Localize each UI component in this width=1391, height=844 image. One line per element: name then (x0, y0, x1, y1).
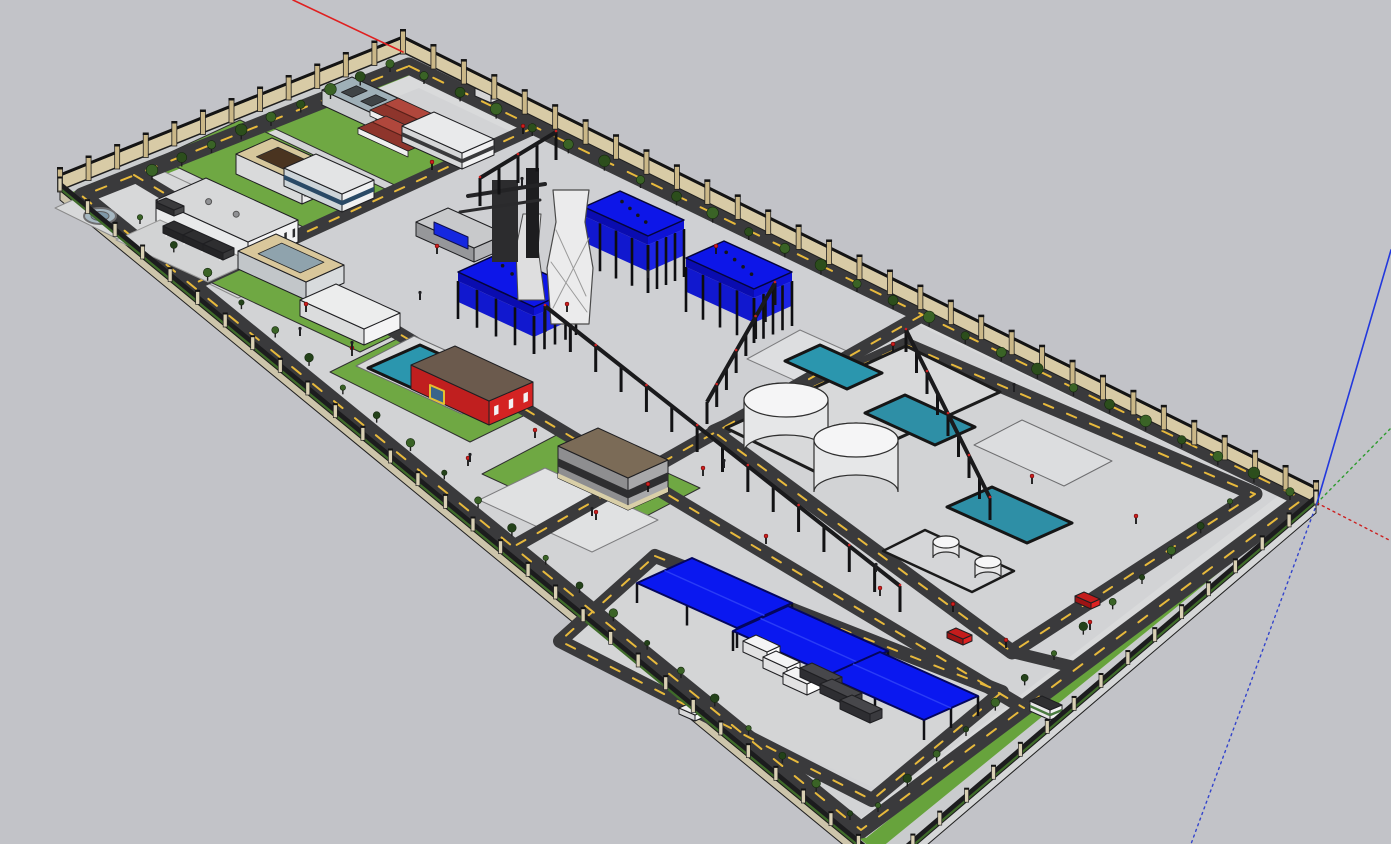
perimeter-fence-southeast-post-cap (1179, 604, 1184, 606)
pipe-rack-east-valve (989, 496, 992, 499)
perimeter-fence-southeast-post-cap (1206, 581, 1211, 583)
process-unit-2-pipe-stub (644, 220, 648, 224)
pipe-rack-diagonal-valve (715, 383, 718, 386)
perimeter-fence-southwest-post-cap (718, 721, 723, 723)
perimeter-wall-northwest-post-cap (200, 110, 206, 113)
street-lamps-light (430, 160, 434, 164)
perimeter-wall-northeast-post (431, 46, 436, 69)
perimeter-wall-northwest-post (143, 135, 148, 158)
pipe-rack-diagonal-valve (735, 349, 738, 352)
small-tank-2-top (975, 556, 1001, 568)
perimeter-fence-southwest-post-cap (746, 743, 751, 745)
pipe-rack-main-valve (544, 304, 547, 307)
perimeter-fence-southwest-post-cap (553, 585, 558, 587)
perimeter-wall-northeast-post (583, 121, 588, 144)
trees-northeast-tree (1286, 488, 1294, 496)
perimeter-fence-southwest-post-cap (498, 539, 503, 541)
street-lamps-light (304, 302, 308, 306)
perimeter-wall-northeast-post (492, 76, 497, 99)
model-viewport[interactable] (0, 0, 1391, 844)
perimeter-fence-southwest-post (636, 654, 640, 667)
perimeter-fence-southeast-post-cap (991, 765, 996, 767)
street-lamps-light (646, 482, 650, 486)
street-lamps-light (1134, 514, 1138, 518)
perimeter-fence-southeast-post-cap (1233, 558, 1238, 560)
pipe-rack-main-column (746, 466, 749, 492)
axis-red-dotted (1317, 503, 1391, 541)
perimeter-fence-southwest-post-cap (691, 698, 696, 700)
shrubs-southeast-tree (1227, 499, 1232, 504)
perimeter-wall-northeast-post-cap (552, 104, 558, 107)
perimeter-fence-southeast-post (1260, 537, 1264, 550)
pedestrians-head (468, 453, 471, 456)
perimeter-wall-northeast-post (1283, 467, 1288, 490)
perimeter-fence-southeast-post (1287, 514, 1291, 527)
perimeter-fence-southwest-post (499, 541, 503, 554)
trees-northeast-tree (1248, 467, 1260, 479)
perimeter-wall-northwest-post (286, 77, 291, 100)
pipe-rack-east-valve (968, 454, 971, 457)
pipe-rack-main-valve (848, 544, 851, 547)
shrubs-southeast-tree (1109, 598, 1116, 605)
pipe-rack-north-gate-column (536, 144, 539, 172)
street-lamps-light (951, 602, 955, 606)
shrubs-southwest-tree (137, 215, 142, 220)
perimeter-wall-northeast-post-cap (583, 119, 589, 122)
perimeter-fence-southwest-post (223, 314, 227, 327)
perimeter-fence-southwest-post-cap (223, 313, 228, 315)
pipe-rack-main-column (848, 546, 851, 572)
perimeter-fence-southwest-post (801, 790, 805, 803)
perimeter-fence-southwest-post (471, 518, 475, 531)
street-lamps-light (435, 244, 439, 248)
perimeter-fence-southeast-post-cap (1099, 673, 1104, 675)
perimeter-fence-southwest-post-cap (828, 811, 833, 813)
perimeter-wall-northeast-post-cap (826, 239, 832, 242)
pipe-rack-main-valve (747, 464, 750, 467)
pipe-rack-east-valve (905, 328, 908, 331)
perimeter-wall-northeast-post (1009, 332, 1014, 355)
perimeter-fence-southwest-post (581, 609, 585, 622)
shrubs-southwest-tree (812, 779, 821, 788)
perimeter-wall-northeast-post-cap (1100, 375, 1106, 378)
perimeter-wall-northeast-post-cap (1009, 330, 1015, 333)
perimeter-wall-northwest-post (115, 146, 120, 169)
perimeter-wall-northeast-post (857, 257, 862, 280)
shrubs-southwest-tree (203, 268, 212, 277)
perimeter-fence-southwest-post (554, 586, 558, 599)
perimeter-wall-northwest-post (200, 112, 205, 135)
pipe-rack-main-column (797, 506, 800, 532)
shrubs-southeast-tree (1197, 522, 1204, 529)
perimeter-fence-southeast-post (1072, 697, 1076, 710)
perimeter-fence-southwest-post-cap (140, 245, 145, 247)
trees-northeast-tree (599, 155, 611, 167)
perimeter-fence-southeast-post (911, 835, 915, 844)
perimeter-wall-northeast-post (1131, 392, 1136, 415)
pedestrians-head (418, 291, 421, 294)
perimeter-fence-southwest-post-cap (443, 494, 448, 496)
perimeter-fence-southwest-post (86, 201, 90, 214)
perimeter-fence-southwest-post-cap (856, 834, 861, 836)
perimeter-fence-southwest-post (388, 450, 392, 463)
shrubs-southwest-tree (442, 470, 447, 475)
shrubs-southwest-tree (272, 327, 279, 334)
perimeter-wall-northeast-post-cap (978, 315, 984, 318)
gatehouse-roof-vent (233, 211, 239, 217)
trees-northeast-tree (707, 207, 719, 219)
perimeter-wall-northeast-post (827, 241, 832, 264)
pipe-rack-diagonal-valve (774, 281, 777, 284)
pipe-rack-main-valve (645, 384, 648, 387)
perimeter-fence-southwest-post (443, 495, 447, 508)
perimeter-wall-northeast-post-cap (1313, 480, 1319, 483)
street-lamps-light (701, 466, 705, 470)
shrubs-southwest-tree (406, 438, 415, 447)
perimeter-fence-southwest-post (333, 405, 337, 418)
trees-northwest-tree (386, 60, 394, 68)
shrubs-southeast-tree (1079, 622, 1088, 631)
perimeter-fence-southeast-post (1045, 720, 1049, 733)
perimeter-wall-northeast-post-cap (887, 270, 893, 273)
street-lamps-light (1004, 638, 1008, 642)
street-lamps-light (1030, 474, 1034, 478)
shrubs-southeast-tree (1021, 674, 1028, 681)
perimeter-wall-northwest-post-cap (314, 64, 320, 67)
perimeter-fence-southwest-post-cap (663, 675, 668, 677)
perimeter-fence-southwest-post-cap (195, 290, 200, 292)
perimeter-wall-northwest-post-cap (257, 87, 263, 90)
process-unit-2-pipe-stub (636, 213, 640, 217)
shrubs-southeast-tree (1051, 651, 1056, 656)
trees-northeast-tree (1105, 399, 1115, 409)
viewport-canvas[interactable] (0, 0, 1391, 844)
street-lamps-light (1088, 620, 1092, 624)
perimeter-fence-southwest-post-cap (801, 789, 806, 791)
perimeter-wall-northwest-post (172, 123, 177, 146)
shrubs-southeast-tree (875, 803, 880, 808)
trees-northeast-tree (455, 87, 465, 97)
pedestrians-head (874, 563, 877, 566)
perimeter-fence-southwest-post-cap (113, 222, 118, 224)
trees-northwest-tree (325, 83, 337, 95)
shrubs-southwest-tree (508, 524, 517, 533)
perimeter-wall-northeast-post (979, 317, 984, 340)
perimeter-fence-southwest-post (664, 677, 668, 690)
perimeter-fence-southeast-post-cap (937, 811, 942, 813)
perimeter-fence-southwest-post (746, 745, 750, 758)
perimeter-wall-northwest-post-cap (57, 167, 63, 170)
process-unit-1-pipe-stub (501, 264, 505, 268)
shrubs-southwest-tree (746, 725, 751, 730)
perimeter-wall-northwest-post (86, 158, 91, 181)
red-building-window (524, 392, 528, 403)
pipe-rack-main-column (645, 386, 648, 412)
pipe-rack-north-gate-column (479, 178, 482, 206)
pipe-rack-east-valve (926, 370, 929, 373)
perimeter-fence-southwest-post (526, 563, 530, 576)
storage-tank-1-top (744, 383, 828, 417)
shrubs-southwest-tree (475, 497, 482, 504)
perimeter-fence-southeast-post-cap (1045, 719, 1050, 721)
perimeter-wall-northeast-post-cap (765, 209, 771, 212)
perimeter-wall-northeast-post-cap (491, 74, 497, 77)
perimeter-fence-southwest-post-cap (415, 471, 420, 473)
perimeter-fence-southwest-post-cap (360, 426, 365, 428)
trees-northeast-tree (961, 332, 969, 340)
shrubs-southwest-tree (710, 694, 719, 703)
perimeter-fence-southwest-post (829, 813, 833, 826)
perimeter-fence-southeast-post (1126, 652, 1130, 665)
perimeter-fence-southwest-post-cap (526, 562, 531, 564)
perimeter-wall-northeast-post (674, 166, 679, 189)
process-unit-1-pipe-stub (510, 272, 514, 276)
perimeter-fence-southwest-post (278, 359, 282, 372)
trees-northeast-tree (853, 280, 861, 288)
perimeter-fence-southwest-post (719, 722, 723, 735)
street-lamps-light (521, 124, 525, 128)
process-unit-2-pipe-stub (620, 200, 624, 204)
perimeter-fence-southeast-post (938, 812, 942, 825)
perimeter-wall-northwest-post-cap (171, 121, 177, 124)
trees-northeast-tree (563, 139, 573, 149)
process-unit-3-pipe-stub (750, 272, 754, 276)
perimeter-fence-southwest-post (609, 631, 613, 644)
small-tank-1-top (933, 536, 959, 548)
perimeter-fence-southeast-post (1099, 675, 1103, 688)
trees-northeast-tree (420, 72, 428, 80)
perimeter-wall-northeast-post-cap (400, 29, 406, 32)
street-lamps-light (594, 510, 598, 514)
perimeter-fence-southwest-post (141, 246, 145, 259)
perimeter-fence-southeast-post-cap (1314, 490, 1319, 492)
pipe-rack-north-gate-column (517, 155, 520, 183)
street-lamps-light (714, 244, 718, 248)
trees-northeast-tree (1178, 436, 1186, 444)
gatehouse-roof-vent (206, 199, 212, 205)
perimeter-wall-northwest-post-cap (114, 144, 120, 147)
perimeter-fence-southwest-post (306, 382, 310, 395)
perimeter-fence-southeast-post-cap (1287, 512, 1292, 514)
perimeter-wall-northeast-post (1070, 362, 1075, 385)
perimeter-wall-northwest-post (343, 54, 348, 77)
shrubs-southwest-tree (576, 582, 583, 589)
perimeter-wall-northeast-post (522, 91, 527, 114)
perimeter-wall-northeast-post-cap (1039, 345, 1045, 348)
trees-northeast-tree (815, 259, 827, 271)
street-lamps-light (764, 534, 768, 538)
trees-northeast-tree (528, 124, 536, 132)
perimeter-wall-northeast-post (614, 136, 619, 159)
shrubs-southwest-tree (373, 412, 380, 419)
shrubs-southwest-tree (779, 752, 786, 759)
perimeter-fence-southwest-post-cap (58, 177, 63, 179)
trees-northeast-tree (490, 103, 502, 115)
perimeter-fence-southwest-post (58, 178, 62, 191)
trees-northeast-tree (1140, 415, 1152, 427)
pedestrians-head (350, 341, 353, 344)
perimeter-wall-northeast-post (553, 106, 558, 129)
perimeter-wall-northeast-post (1161, 407, 1166, 430)
pipe-rack-diagonal-valve (754, 315, 757, 318)
perimeter-fence-southeast-post-cap (1072, 696, 1077, 698)
perimeter-fence-southeast-post (1018, 743, 1022, 756)
pipe-rack-main-column (569, 326, 572, 352)
perimeter-wall-northwest-post-cap (286, 75, 292, 78)
pipe-rack-main-valve (899, 584, 902, 587)
perimeter-wall-northeast-post (796, 226, 801, 249)
perimeter-wall-northeast-post-cap (735, 194, 741, 197)
trees-northeast-tree (888, 295, 898, 305)
red-building-window (494, 405, 498, 416)
perimeter-wall-northeast-post-cap (857, 255, 863, 258)
gatehouse-window (293, 228, 296, 238)
perimeter-wall-northeast-post-cap (1070, 360, 1076, 363)
perimeter-fence-southwest-post (113, 223, 117, 236)
perimeter-fence-southwest-post (251, 337, 255, 350)
perimeter-fence-southwest-post (168, 269, 172, 282)
perimeter-fence-southwest-post-cap (278, 358, 283, 360)
perimeter-wall-northeast-post (735, 196, 740, 219)
perimeter-wall-northeast-post (1100, 377, 1105, 400)
perimeter-fence-southwest-post-cap (773, 766, 778, 768)
perimeter-wall-northwest-post (315, 66, 320, 89)
perimeter-wall-northwest-post-cap (86, 156, 92, 159)
process-unit-2-pipe-stub (628, 207, 632, 211)
perimeter-fence-southwest-post (856, 835, 860, 844)
perimeter-wall-northeast-post (948, 302, 953, 325)
perimeter-wall-northeast-post-cap (704, 179, 710, 182)
process-unit-3-pipe-stub (724, 251, 728, 255)
trees-northwest-tree (207, 141, 215, 149)
shrubs-southeast-tree (991, 698, 1000, 707)
pedestrians-head (1012, 383, 1015, 386)
pedestrians-head (722, 459, 725, 462)
perimeter-fence-southwest-post-cap (636, 653, 641, 655)
perimeter-fence-southeast-post (1153, 629, 1157, 642)
perimeter-wall-northwest-post-cap (343, 52, 349, 55)
perimeter-fence-southwest-post-cap (305, 381, 310, 383)
perimeter-fence-southwest-post-cap (388, 449, 393, 451)
perimeter-fence-southwest-post-cap (608, 630, 613, 632)
process-unit-3-pipe-stub (741, 265, 745, 269)
pipe-rack-main-column (594, 346, 597, 372)
pipe-rack-east-valve (947, 412, 950, 415)
axis-blue-solid (1317, 250, 1391, 503)
perimeter-wall-northeast-post-cap (1130, 390, 1136, 393)
shrubs-southwest-tree (340, 385, 345, 390)
trees-northeast-tree (745, 228, 753, 236)
perimeter-fence-southeast-post (1207, 583, 1211, 596)
perimeter-fence-southwest-post-cap (85, 199, 90, 201)
storage-tank-2-top (814, 423, 898, 457)
street-lamps-light (891, 342, 895, 346)
perimeter-wall-northeast-post (461, 61, 466, 84)
shrubs-southwest-tree (170, 241, 177, 248)
perimeter-wall-northeast-post-cap (674, 164, 680, 167)
pipe-rack-main-column (670, 406, 673, 432)
perimeter-wall-northeast-post-cap (461, 59, 467, 62)
pipe-rack-main-valve (594, 344, 597, 347)
perimeter-wall-northeast-post (766, 211, 771, 234)
perimeter-fence-southeast-post-cap (1260, 535, 1265, 537)
perimeter-fence-southwest-post-cap (250, 335, 255, 337)
perimeter-wall-northeast-post (705, 181, 710, 204)
perimeter-wall-northeast-post-cap (1191, 420, 1197, 423)
trees-northwest-tree (355, 72, 365, 82)
perimeter-wall-northwest-post (258, 89, 263, 112)
street-lamps-light (878, 586, 882, 590)
pipe-rack-north-gate-valve (517, 153, 520, 156)
trees-northwest-tree (146, 164, 158, 176)
axis-red-solid (293, 0, 403, 52)
red-building-window (509, 398, 513, 409)
pipe-rack-north-gate-column (555, 132, 558, 160)
pipe-rack-main-valve (797, 504, 800, 507)
perimeter-fence-southeast-post (992, 766, 996, 779)
trees-northeast-tree (1213, 451, 1223, 461)
perimeter-fence-southeast-post-cap (910, 834, 915, 836)
perimeter-wall-northeast-post-cap (948, 300, 954, 303)
shrubs-southwest-tree (847, 811, 852, 816)
shrubs-southwest-tree (609, 609, 618, 618)
pipe-rack-main-column (772, 486, 775, 512)
perimeter-wall-northeast-post (1192, 422, 1197, 445)
perimeter-wall-northeast-post-cap (917, 285, 923, 288)
pedestrians-head (590, 507, 593, 510)
street-lamps-light (533, 428, 537, 432)
pipe-rack-diagonal-column (706, 402, 709, 424)
perimeter-fence-southwest-post (774, 767, 778, 780)
perimeter-wall-northeast-post (887, 272, 892, 295)
trees-northeast-tree (780, 243, 790, 253)
perimeter-fence-southwest-post (361, 427, 365, 440)
shrubs-southeast-tree (903, 774, 912, 783)
shrubs-southeast-tree (1167, 546, 1176, 555)
street-lamps-light (565, 302, 569, 306)
chimney (526, 168, 539, 258)
perimeter-wall-northeast-post-cap (613, 134, 619, 137)
shrubs-southwest-tree (305, 353, 314, 362)
perimeter-fence-southwest-post-cap (333, 403, 338, 405)
pedestrians-head (646, 269, 649, 272)
perimeter-wall-northwest-post-cap (229, 98, 235, 101)
perimeter-wall-northeast-post (644, 151, 649, 174)
trees-northeast-tree (923, 311, 935, 323)
trees-northeast-tree (636, 176, 644, 184)
perimeter-fence-southeast-post-cap (964, 788, 969, 790)
perimeter-fence-southwest-post (691, 699, 695, 712)
pipe-rack-main-column (899, 586, 902, 612)
shrubs-southwest-tree (543, 555, 548, 560)
perimeter-fence-southwest-post-cap (581, 607, 586, 609)
shrubs-southeast-tree (963, 727, 968, 732)
perimeter-wall-northwest-post-cap (371, 41, 377, 44)
perimeter-wall-northwest-post-cap (143, 133, 149, 136)
perimeter-wall-northeast-post-cap (796, 224, 802, 227)
perimeter-fence-southeast-post (965, 789, 969, 802)
trees-northwest-tree (297, 100, 305, 108)
perimeter-wall-northeast-post-cap (1283, 465, 1289, 468)
trees-northeast-tree (1069, 384, 1077, 392)
shrubs-southwest-tree (644, 640, 649, 645)
pipe-rack-main-column (696, 426, 699, 452)
perimeter-fence-southeast-post-cap (1152, 627, 1157, 629)
perimeter-fence-southwest-post (196, 291, 200, 304)
perimeter-fence-southeast-post-cap (1125, 650, 1130, 652)
pedestrians-head (298, 327, 301, 330)
pipe-rack-main-valve (696, 424, 699, 427)
